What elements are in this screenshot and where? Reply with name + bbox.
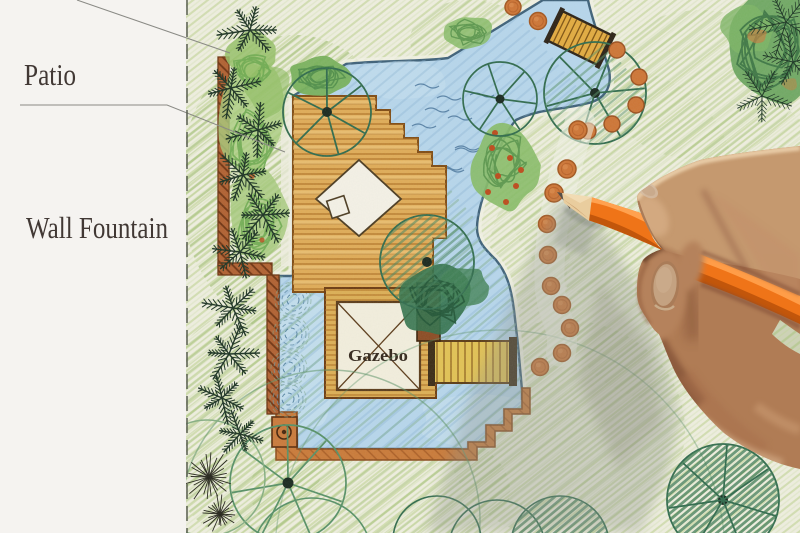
svg-text:Wall Fountain: Wall Fountain [26,210,168,245]
svg-text:Patio: Patio [24,57,76,92]
